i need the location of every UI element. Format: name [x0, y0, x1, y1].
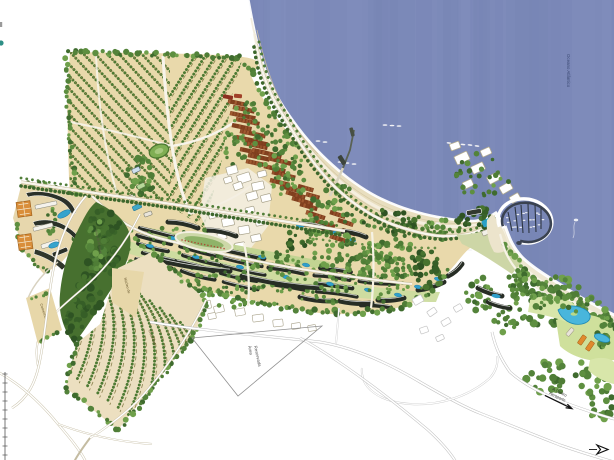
svg-text:Oceano Atlântico: Oceano Atlântico	[566, 54, 571, 88]
